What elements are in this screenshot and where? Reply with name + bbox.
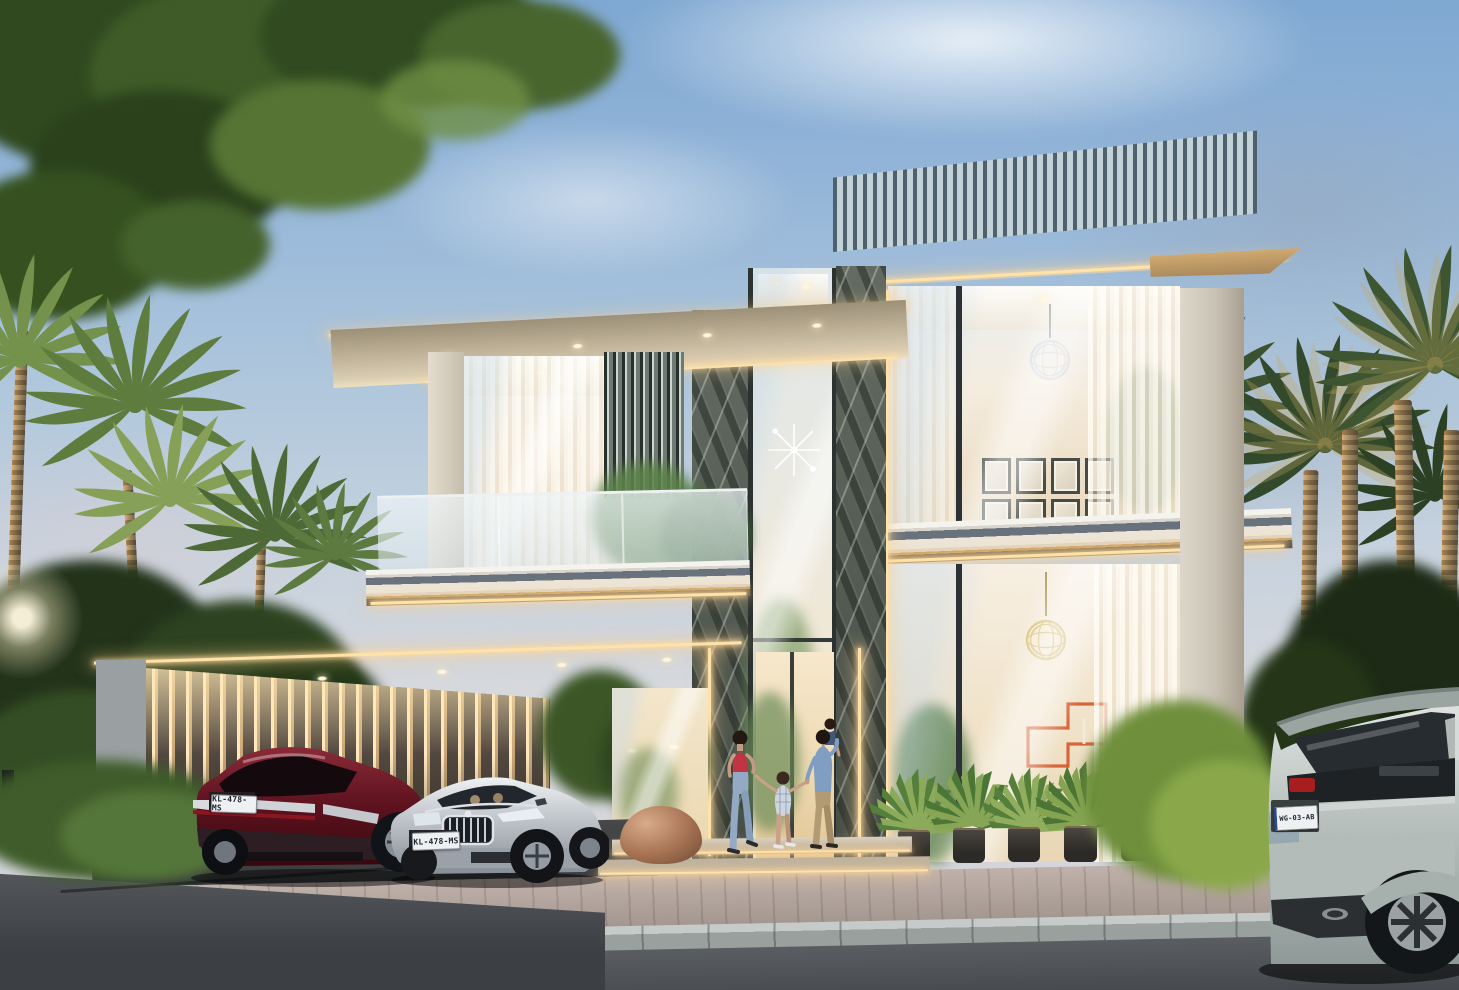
license-plate: KL-478-MS — [211, 794, 258, 814]
upper-right-window — [888, 286, 1180, 538]
license-plate: KL-478-MS — [412, 831, 461, 851]
cloud — [380, 120, 800, 280]
window-mullion — [956, 286, 962, 538]
man-with-toddler-figure — [805, 719, 839, 848]
family-group — [703, 712, 855, 864]
silver-sedan — [385, 756, 609, 890]
child-figure — [756, 772, 808, 848]
woman-figure — [729, 731, 756, 853]
villa-render-scene: KL-478-MS KL-478-MS — [0, 0, 1459, 990]
license-plate: WG-03-AB — [1273, 805, 1318, 831]
